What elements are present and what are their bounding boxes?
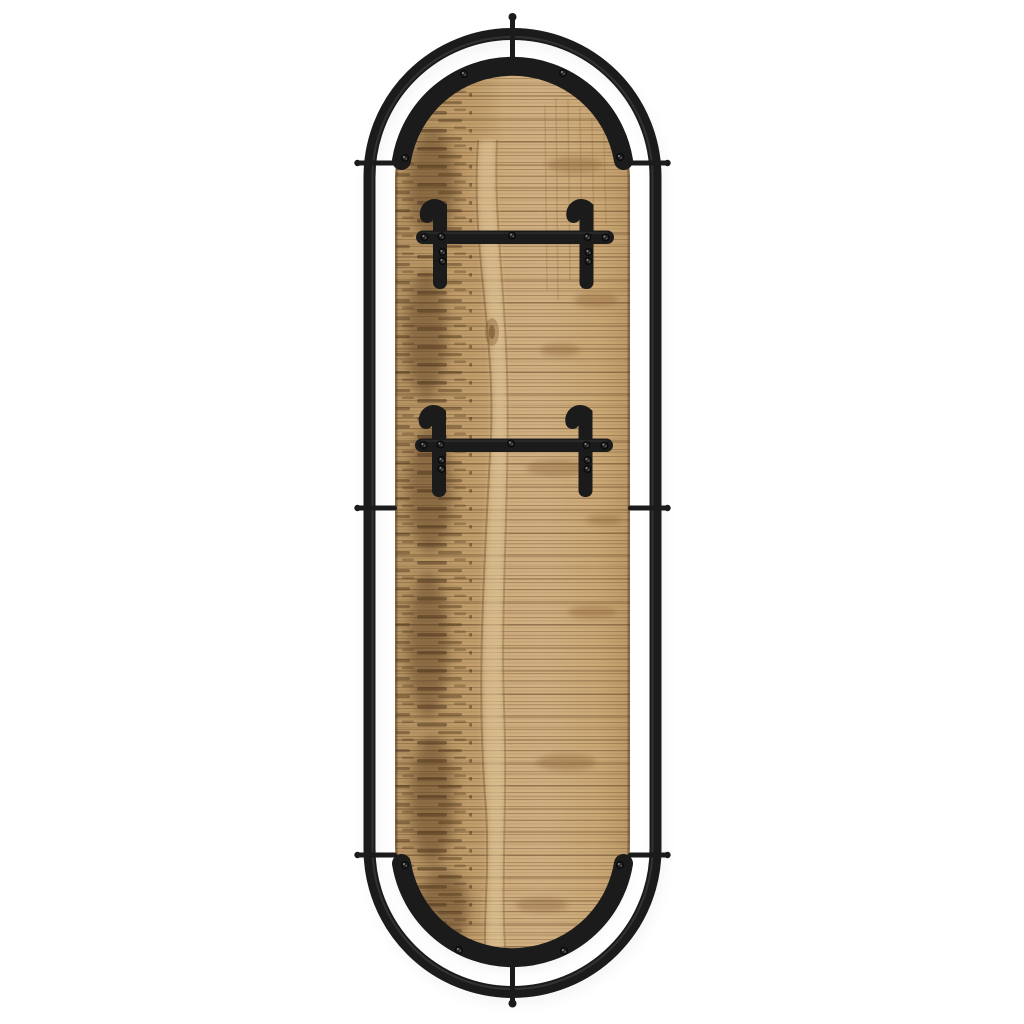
wood-panel [395, 62, 630, 962]
wood-texture [395, 62, 630, 962]
product-image [0, 0, 1024, 1024]
coat-rack-photo [0, 0, 1024, 1024]
